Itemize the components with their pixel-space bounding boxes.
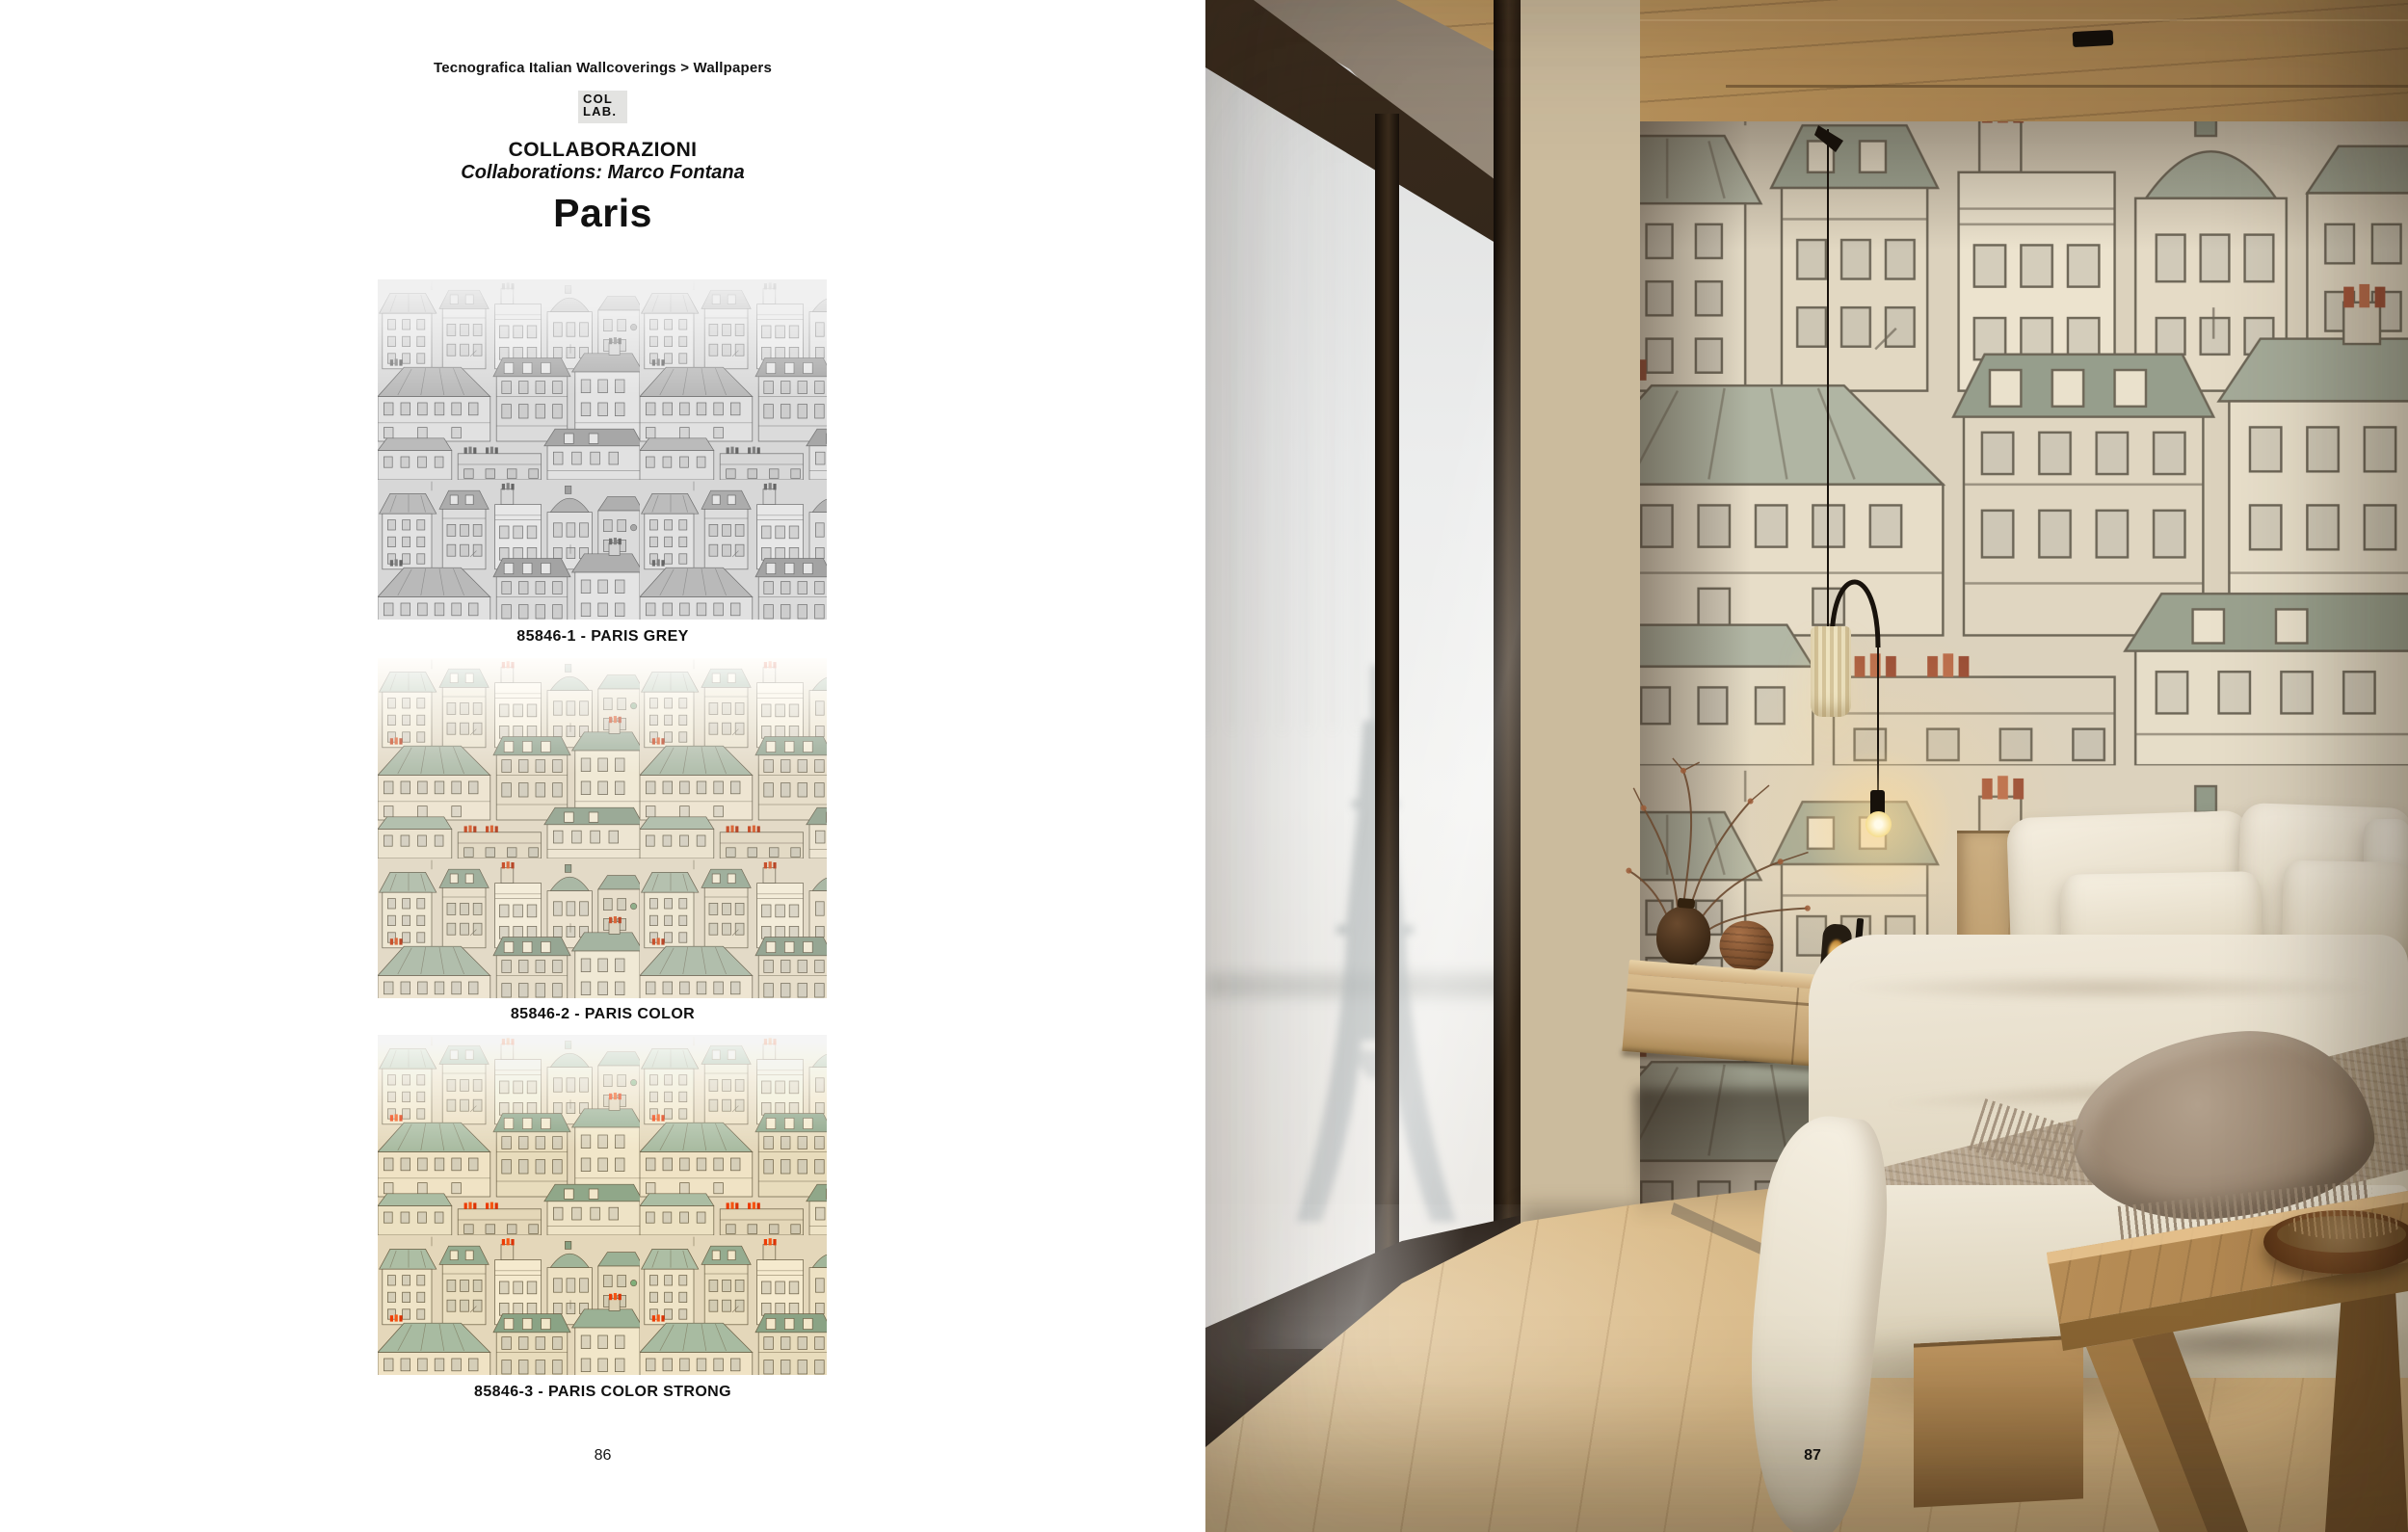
collab-logo: COL LAB. [578,91,627,123]
swatch-caption-paris-color-strong: 85846-3 - PARIS COLOR STRONG [0,1384,1205,1401]
bowl-dried-contents [2289,1210,2400,1239]
swatch-image-paris-color-strong [378,1035,827,1375]
collab-logo-line2: LAB. [583,105,627,118]
pendant-shade [1811,626,1851,717]
collection-subheading: Collaborations: Marco Fontana [0,162,1205,184]
collection-heading: COLLABORAZIONI [0,139,1205,162]
catalog-page-left: Tecnografica Italian Wallcoverings > Wal… [0,0,1205,1532]
swatch-image-paris-color [378,658,827,998]
page-number-left: 86 [0,1447,1205,1465]
design-title: Paris [0,191,1205,236]
swatch-image-paris-grey [378,279,827,620]
ceiling-recess-line [1726,85,2408,88]
page-number-right: 87 [1784,1447,1841,1465]
bed-wood-platform [1914,1334,2083,1507]
ceiling-highlight-line [1620,19,2408,21]
ceiling-vent [2073,30,2114,47]
catalog-spread: Tecnografica Italian Wallcoverings > Wal… [0,0,2408,1532]
swatch-caption-paris-grey: 85846-1 - PARIS GREY [0,628,1205,646]
room-photo: 87 [1205,0,2408,1532]
breadcrumb: Tecnografica Italian Wallcoverings > Wal… [0,60,1205,76]
swatch-caption-paris-color: 85846-2 - PARIS COLOR [0,1006,1205,1023]
glass-reflection [1205,0,1528,1349]
duvet-wrinkle [1841,973,2381,1002]
